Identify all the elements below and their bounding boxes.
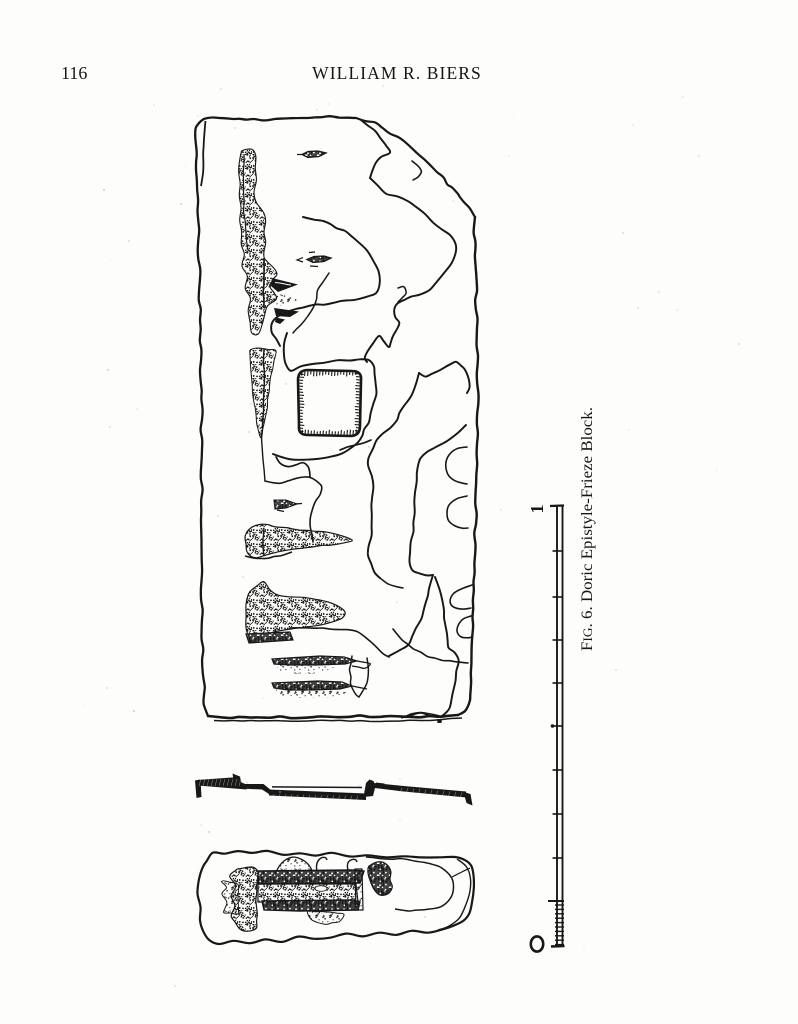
svg-text:116: 116 [61, 63, 87, 83]
svg-text:FIG. 6. Doric Epistyle-Frieze: FIG. 6. Doric Epistyle-Frieze Block. [579, 407, 596, 651]
svg-text:1: 1 [527, 505, 547, 514]
svg-text:WILLIAM R. BIERS: WILLIAM R. BIERS [312, 63, 482, 83]
